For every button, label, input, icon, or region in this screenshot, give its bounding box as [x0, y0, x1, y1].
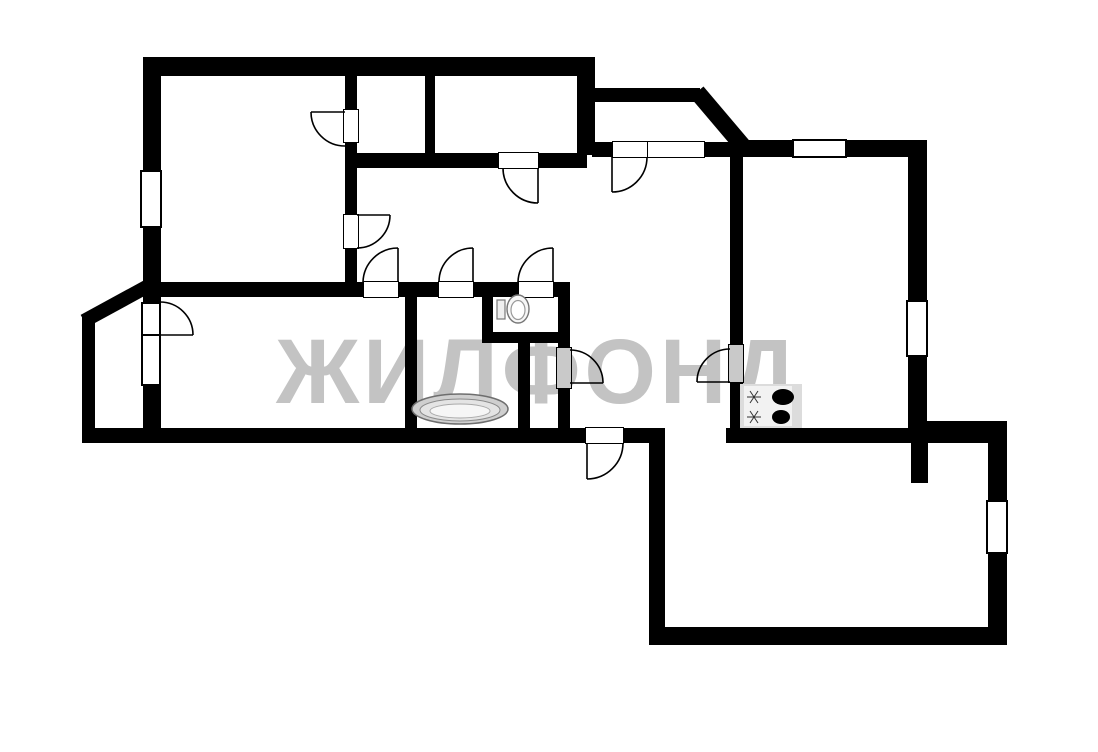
door-swing-arc [587, 443, 623, 479]
window [906, 300, 928, 357]
wall [730, 157, 743, 347]
door-swing-arc [439, 248, 473, 282]
door-swing-arc [311, 112, 345, 146]
door-swing-arc [363, 248, 398, 282]
wall [143, 57, 595, 76]
door-swing-arc [503, 168, 538, 203]
door-swing-arc [612, 157, 647, 192]
wall [82, 315, 95, 437]
wall [82, 428, 665, 443]
wall [577, 57, 595, 155]
wall [730, 380, 743, 430]
door-opening [612, 141, 648, 158]
wall [726, 428, 926, 443]
wall [925, 421, 1007, 443]
window [140, 170, 162, 228]
door-opening [363, 281, 399, 298]
wall [405, 297, 417, 428]
wall-opening [647, 141, 705, 158]
balcony-window [141, 334, 161, 386]
toilet-icon [497, 295, 529, 323]
door-opening [438, 281, 474, 298]
door-opening [343, 109, 359, 143]
wall [908, 140, 927, 443]
floor-plan: ЖИЛФОНД [0, 0, 1098, 752]
door-swing-arc [518, 248, 553, 282]
door-opening [518, 281, 554, 298]
door-swing-arc [357, 215, 390, 248]
wall [345, 153, 587, 168]
wall [649, 627, 1007, 645]
balcony-door [141, 302, 161, 336]
door-opening [498, 152, 539, 169]
door-opening [343, 214, 359, 249]
wall [592, 88, 700, 102]
door-leaf [556, 347, 572, 389]
wall [518, 343, 530, 428]
wall [649, 443, 665, 633]
window [792, 139, 847, 158]
window [986, 500, 1008, 554]
wall [425, 76, 435, 154]
wall [911, 443, 928, 483]
entrance-door-opening [585, 427, 624, 444]
wall [482, 332, 570, 343]
door-swing-arc [160, 302, 193, 335]
door-leaf [728, 344, 744, 383]
wall [143, 385, 161, 430]
